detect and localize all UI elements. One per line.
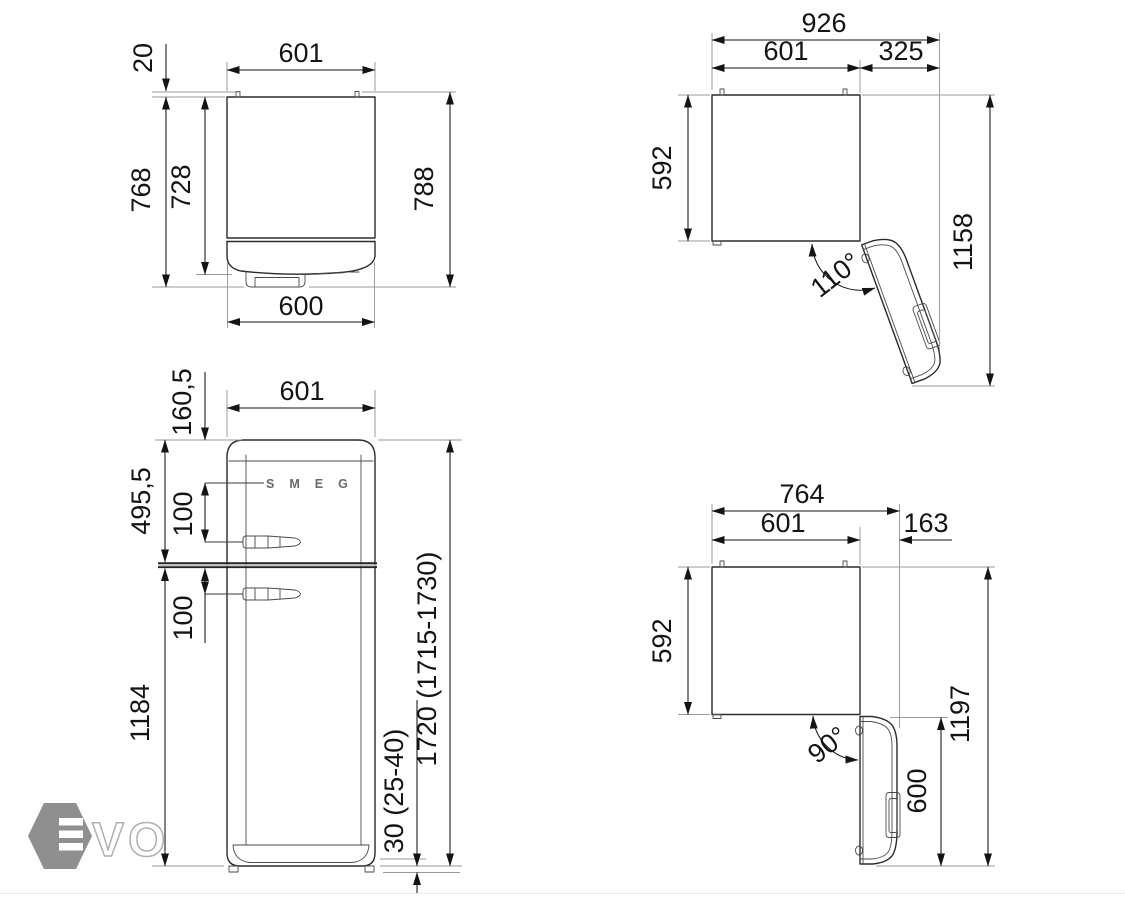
- dim-protrusion-163: 163: [900, 508, 953, 540]
- hinge-pin-right-110: [843, 89, 847, 95]
- dim-label-788: 788: [409, 166, 439, 211]
- dim-logo-to-handle-100: 100: [168, 483, 205, 542]
- open-door-90: [856, 717, 901, 865]
- hinge-pin-left-110: [720, 89, 724, 95]
- fridge-front-outline: [227, 440, 375, 866]
- dim-label-1158: 1158: [948, 213, 978, 271]
- dim-label-592-110: 592: [647, 145, 677, 190]
- dim-width-601-front: 601: [227, 376, 375, 408]
- dim-overall-764: 764: [712, 479, 900, 511]
- dim-label-100-upper: 100: [168, 491, 198, 536]
- dim-label-728: 728: [166, 164, 196, 209]
- evo-outline-letters: VO: [92, 814, 169, 867]
- dim-depth-788: 788: [409, 92, 450, 287]
- dim-label-600-open: 600: [902, 768, 932, 813]
- view-front: SMEG 601 160,5 100 100 495,5: [125, 368, 462, 893]
- door-gap-lines: [246, 455, 361, 845]
- fridge-door-handle: [243, 588, 301, 600]
- dim-label-20: 20: [128, 43, 158, 73]
- dim-overall-depth-1158: 1158: [948, 95, 990, 386]
- view-top-door-open-110: 926 601 325 592 1158 110°: [647, 8, 995, 386]
- fridge-dimension-diagram: VO 601 20 768 728 788: [0, 0, 1125, 900]
- view-top-door-open-90: 764 601 163 592 1197 600 90°: [647, 479, 995, 866]
- dim-label-1184: 1184: [125, 684, 155, 742]
- hinge-pin-left-90: [720, 561, 724, 567]
- technical-drawing-page: VO 601 20 768 728 788: [0, 0, 1125, 900]
- dim-body-601-90: 601: [712, 508, 860, 540]
- dim-depth-728: 728: [166, 97, 205, 275]
- foot-right: [365, 866, 374, 872]
- dim-label-601-90: 601: [760, 508, 805, 538]
- dim-label-100-lower: 100: [168, 595, 198, 640]
- dim-depth-592-90: 592: [647, 567, 688, 715]
- dim-freezer-495-5: 495,5: [126, 440, 165, 562]
- dim-clearance-325: 325: [860, 36, 940, 68]
- dim-door-width-600: 600: [228, 291, 375, 322]
- cabinet-top-outline: [227, 97, 375, 238]
- dim-label-495-5: 495,5: [126, 467, 156, 535]
- dim-label-601-front: 601: [279, 376, 324, 406]
- dim-label-600: 600: [278, 291, 323, 321]
- evo-watermark: VO: [28, 803, 169, 869]
- dim-depth-768: 768: [126, 97, 166, 287]
- cabinet-top-outline-110: [712, 95, 860, 241]
- dim-label-160-5: 160,5: [167, 368, 197, 436]
- hinge-pin-right: [355, 92, 359, 98]
- evo-letter-e-bars: [59, 818, 83, 851]
- dim-label-1197: 1197: [945, 685, 975, 743]
- dim-label-768: 768: [126, 167, 156, 212]
- dim-open-door-600: 600: [902, 718, 941, 867]
- foot-left: [229, 866, 238, 872]
- dim-label-601-110: 601: [763, 36, 808, 66]
- open-door-110: [857, 231, 949, 385]
- dim-divider-to-handle-100: 100: [168, 569, 205, 644]
- dim-hinge-20: 20: [128, 43, 166, 91]
- dim-label-angle-90: 90°: [802, 721, 853, 770]
- dim-angle-90: 90°: [802, 716, 858, 769]
- dim-top-to-logo-160-5: 160,5: [167, 368, 205, 440]
- dim-overall-depth-1197: 1197: [945, 567, 988, 866]
- closed-door-outline: [227, 242, 375, 275]
- door-divider: [158, 563, 377, 567]
- dim-label-601: 601: [278, 38, 323, 68]
- dim-label-926: 926: [801, 8, 846, 38]
- freezer-door-handle: [243, 536, 301, 548]
- dim-depth-592-110: 592: [647, 95, 688, 241]
- plinth-panel: [233, 845, 369, 863]
- dim-label-764: 764: [779, 479, 824, 509]
- extension-lines-110: [678, 33, 995, 386]
- cabinet-top-outline-90: [712, 567, 860, 715]
- dim-label-163: 163: [903, 508, 948, 538]
- dim-label-592-90: 592: [647, 618, 677, 663]
- view-top-door-closed: 601 20 768 728 788 600: [126, 38, 456, 328]
- dim-overall-height-1720: 1720 (1715-1730): [412, 440, 450, 866]
- dim-label-325: 325: [878, 36, 923, 66]
- dim-body-601-110: 601: [712, 36, 860, 68]
- smeg-logo: SMEG: [266, 477, 363, 491]
- dim-label-30: 30 (25-40): [379, 729, 409, 854]
- hinge-pin-right-90: [843, 561, 847, 567]
- dim-width-601: 601: [227, 38, 375, 70]
